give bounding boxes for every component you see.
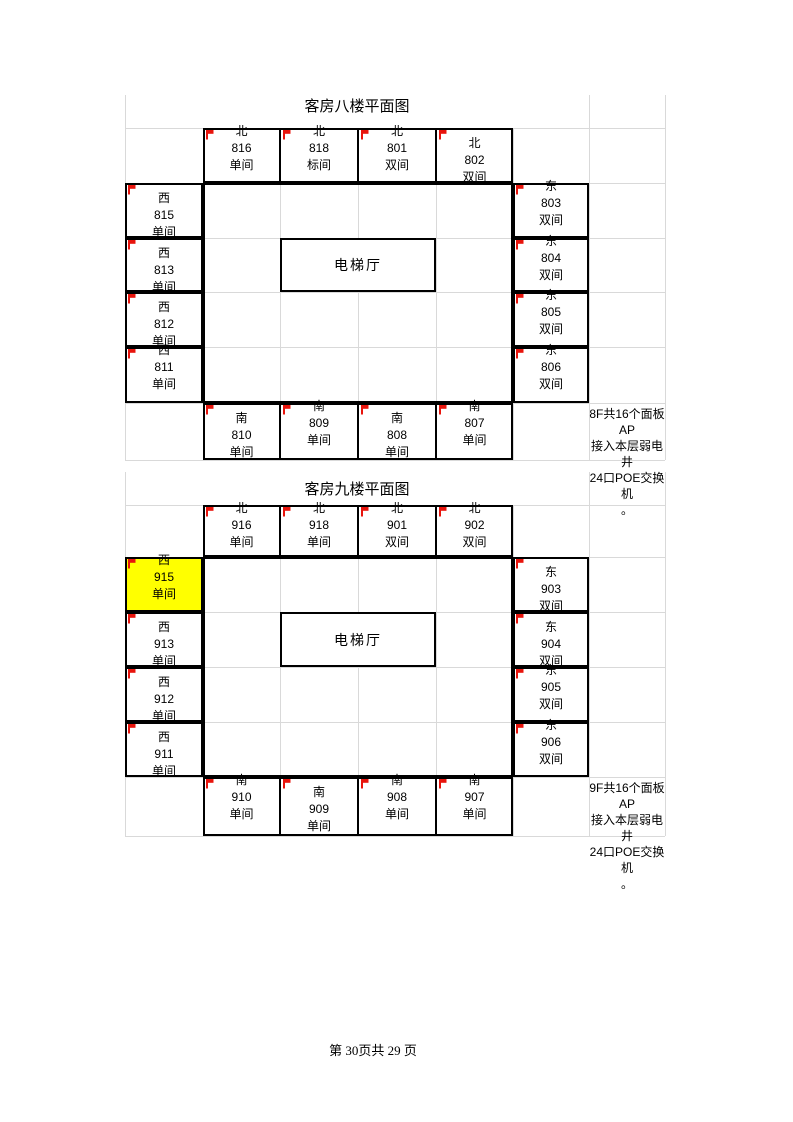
room-type: 单间: [203, 534, 280, 551]
flag-icon: [283, 129, 292, 140]
room-number: 810: [203, 427, 280, 444]
room-cell-903: 东903双间: [513, 557, 589, 612]
room-type: 单间: [436, 806, 513, 823]
room-number: 909: [280, 801, 358, 818]
room-number: 905: [513, 679, 589, 696]
room-type: 单间: [203, 444, 280, 461]
room-number: 816: [203, 140, 280, 157]
room-type: 双间: [436, 169, 513, 186]
flag-icon: [128, 723, 137, 734]
room-cell-909: 南909单间: [280, 777, 358, 836]
room-type: 双间: [358, 157, 436, 174]
room-label: 北802双间: [436, 135, 513, 186]
room-divider: [357, 128, 359, 183]
ap-note: 8F共16个面板AP接入本层弱电井24口POE交换机。: [589, 406, 665, 472]
flag-icon: [128, 184, 137, 195]
room-divider: [279, 403, 281, 460]
room-divider: [357, 403, 359, 460]
room-label: 南810单间: [203, 410, 280, 461]
room-cell-802: 北802双间: [436, 128, 513, 183]
flag-icon: [206, 404, 215, 415]
room-type: 单间: [125, 376, 203, 393]
flag-icon: [361, 506, 370, 517]
room-cell-808: 南808单间: [358, 403, 436, 460]
room-number: 801: [358, 140, 436, 157]
elevator-hall: 电梯厅: [280, 612, 436, 667]
room-number: 906: [513, 734, 589, 751]
room-cell-905: 东905双间: [513, 667, 589, 722]
room-cell-804: 东804双间: [513, 238, 589, 292]
room-number: 915: [125, 569, 203, 586]
room-divider: [279, 505, 281, 557]
room-type: 单间: [280, 534, 358, 551]
room-label: 西913单间: [125, 619, 203, 670]
room-divider: [357, 777, 359, 836]
room-number: 802: [436, 152, 513, 169]
room-number: 912: [125, 691, 203, 708]
room-type: 双间: [513, 751, 589, 768]
room-cell-818: 北818标间: [280, 128, 358, 183]
room-label: 西911单间: [125, 729, 203, 780]
elevator-hall: 电梯厅: [280, 238, 436, 292]
flag-icon: [206, 129, 215, 140]
room-number: 911: [125, 746, 203, 763]
room-cell-805: 东805双间: [513, 292, 589, 347]
room-cell-801: 北801双间: [358, 128, 436, 183]
room-cell-907: 南907单间: [436, 777, 513, 836]
room-cell-815: 西815单间: [125, 183, 203, 238]
flag-icon: [439, 778, 448, 789]
flag-icon: [439, 129, 448, 140]
room-cell-812: 西812单间: [125, 292, 203, 347]
room-divider: [357, 505, 359, 557]
flag-icon: [516, 723, 525, 734]
flag-icon: [516, 239, 525, 250]
room-type: 单间: [436, 432, 513, 449]
floor-plan-title: 客房九楼平面图: [125, 482, 589, 498]
room-cell-816: 北816单间: [203, 128, 280, 183]
room-cell-912: 西912单间: [125, 667, 203, 722]
room-cell-803: 东803双间: [513, 183, 589, 238]
room-type: 双间: [358, 534, 436, 551]
flag-icon: [516, 668, 525, 679]
flag-icon: [361, 129, 370, 140]
flag-icon: [128, 239, 137, 250]
flag-icon: [283, 506, 292, 517]
room-number: 805: [513, 304, 589, 321]
ap-note-line: 。: [589, 502, 665, 518]
room-type: 双间: [513, 696, 589, 713]
room-number: 815: [125, 207, 203, 224]
room-type: 双间: [513, 321, 589, 338]
room-number: 804: [513, 250, 589, 267]
ap-note: 9F共16个面板AP接入本层弱电井24口POE交换机。: [589, 780, 665, 846]
room-type: 单间: [358, 444, 436, 461]
room-type: 单间: [280, 432, 358, 449]
room-number: 903: [513, 581, 589, 598]
flag-icon: [128, 293, 137, 304]
flag-icon: [206, 778, 215, 789]
ap-note-line: 24口POE交换机: [589, 470, 665, 502]
room-type: 双间: [513, 212, 589, 229]
elevator-label: 电梯厅: [334, 255, 382, 275]
room-number: 812: [125, 316, 203, 333]
room-cell-904: 东904双间: [513, 612, 589, 667]
room-label: 西815单间: [125, 190, 203, 241]
room-cell-918: 北918单间: [280, 505, 358, 557]
ap-note-line: 8F共16个面板AP: [589, 406, 665, 438]
grid-line: [665, 95, 666, 460]
flag-icon: [439, 404, 448, 415]
grid-line: [125, 836, 665, 837]
room-label: 南909单间: [280, 784, 358, 835]
room-cell-908: 南908单间: [358, 777, 436, 836]
flag-icon: [128, 558, 137, 569]
room-cell-916: 北916单间: [203, 505, 280, 557]
flag-icon: [516, 293, 525, 304]
room-cell-809: 南809单间: [280, 403, 358, 460]
room-divider: [435, 777, 437, 836]
flag-icon: [128, 348, 137, 359]
room-type: 单间: [280, 818, 358, 835]
room-label: 西813单间: [125, 245, 203, 296]
room-number: 809: [280, 415, 358, 432]
room-cell-910: 南910单间: [203, 777, 280, 836]
room-number: 818: [280, 140, 358, 157]
flag-icon: [361, 778, 370, 789]
grid-line: [665, 472, 666, 836]
ap-note-line: 接入本层弱电井: [589, 438, 665, 470]
room-number: 907: [436, 789, 513, 806]
room-number: 904: [513, 636, 589, 653]
room-type: 单间: [203, 806, 280, 823]
room-number: 813: [125, 262, 203, 279]
flag-icon: [361, 404, 370, 415]
room-cell-915: 西915单间: [125, 557, 203, 612]
room-cell-913: 西913单间: [125, 612, 203, 667]
flag-icon: [516, 348, 525, 359]
ap-note-line: 24口POE交换机: [589, 844, 665, 876]
room-number: 808: [358, 427, 436, 444]
room-number: 807: [436, 415, 513, 432]
room-type: 双间: [436, 534, 513, 551]
room-divider: [435, 505, 437, 557]
room-type: 标间: [280, 157, 358, 174]
ap-note-line: 。: [589, 876, 665, 892]
room-cell-813: 西813单间: [125, 238, 203, 292]
room-cell-807: 南807单间: [436, 403, 513, 460]
room-divider: [279, 777, 281, 836]
room-cell-911: 西911单间: [125, 722, 203, 777]
page-footer: 第 30页共 29 页: [0, 1040, 746, 1056]
flag-icon: [283, 404, 292, 415]
flag-icon: [128, 613, 137, 624]
room-number: 910: [203, 789, 280, 806]
room-type: 单间: [125, 586, 203, 603]
room-number: 908: [358, 789, 436, 806]
room-cell-806: 东806双间: [513, 347, 589, 403]
flag-icon: [516, 613, 525, 624]
room-number: 916: [203, 517, 280, 534]
room-type: 单间: [203, 157, 280, 174]
flag-icon: [283, 778, 292, 789]
flag-icon: [516, 184, 525, 195]
room-number: 918: [280, 517, 358, 534]
room-divider: [279, 128, 281, 183]
room-cell-810: 南810单间: [203, 403, 280, 460]
room-number: 803: [513, 195, 589, 212]
flag-icon: [439, 506, 448, 517]
room-cell-901: 北901双间: [358, 505, 436, 557]
room-number: 913: [125, 636, 203, 653]
room-type: 双间: [513, 267, 589, 284]
floor-plan-title: 客房八楼平面图: [125, 99, 589, 115]
room-cell-902: 北902双间: [436, 505, 513, 557]
room-cell-811: 西811单间: [125, 347, 203, 403]
room-label: 东903双间: [513, 564, 589, 615]
flag-icon: [516, 558, 525, 569]
ap-note-line: 9F共16个面板AP: [589, 780, 665, 812]
room-number: 901: [358, 517, 436, 534]
room-type: 单间: [358, 806, 436, 823]
ap-note-line: 接入本层弱电井: [589, 812, 665, 844]
room-divider: [435, 403, 437, 460]
room-number: 806: [513, 359, 589, 376]
room-number: 811: [125, 359, 203, 376]
room-type: 双间: [513, 376, 589, 393]
room-type: 单间: [125, 763, 203, 780]
room-number: 902: [436, 517, 513, 534]
room-label: 西912单间: [125, 674, 203, 725]
room-divider: [435, 128, 437, 183]
flag-icon: [128, 668, 137, 679]
flag-icon: [206, 506, 215, 517]
document-page: 客房八楼平面图电梯厅北816单间北818标间北801双间北802双间南810单间…: [0, 0, 793, 1122]
room-cell-906: 东906双间: [513, 722, 589, 777]
elevator-label: 电梯厅: [334, 630, 382, 650]
room-label: 南808单间: [358, 410, 436, 461]
